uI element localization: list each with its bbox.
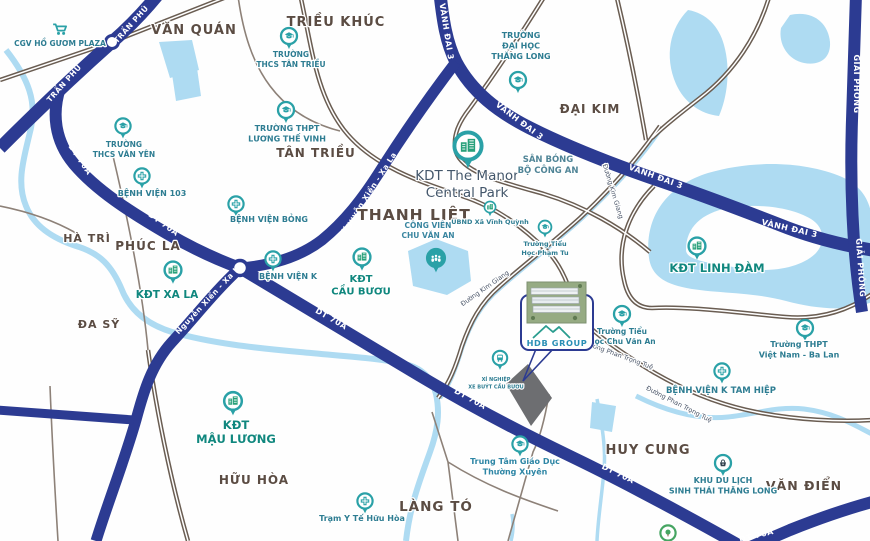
road-label: TRẦN PHÚ <box>111 3 150 45</box>
project-callout[interactable]: HDB GROUP <box>521 282 593 381</box>
place-truong-tieu-hoc-chu-van-an: Trường TiểuHọc Chu Văn An <box>588 306 655 346</box>
kdt-xa-la-building-pin-icon[interactable] <box>165 262 182 284</box>
project-aerial-photo <box>527 282 586 323</box>
kdt-linh-dam-label: KĐT LINH ĐÀM <box>669 260 764 275</box>
place-truong-thcs-van-yen: TRƯỜNGTHCS VĂN YÊN <box>93 118 155 159</box>
kdt-cau-buou-label: KĐT <box>350 274 373 285</box>
hdb-group-label: HDB GROUP <box>527 338 588 348</box>
truong-thpt-viet-nam-ba-lan-school-pin-icon[interactable] <box>797 320 813 341</box>
place-benh-vien-bong: BỆNH VIỆN BỎNG <box>228 196 308 224</box>
place-truong-thpt-viet-nam-ba-lan: Trường THPTViệt Nam - Ba Lan <box>759 320 840 360</box>
truong-tieu-hoc-chu-van-an-label: Học Chu Văn An <box>588 337 655 346</box>
truong-tieu-hoc-pham-tu-label: Học Phạm Tu <box>521 249 569 257</box>
truong-dai-hoc-thang-long-school-pin-icon[interactable] <box>510 72 526 93</box>
trung-tam-giao-duc-thuong-xuyen-label: Trung Tâm Giáo Dục <box>470 457 560 466</box>
road-stub-southwest <box>0 410 134 420</box>
benh-vien-bong-label: BỆNH VIỆN BỎNG <box>230 212 308 224</box>
khu-du-lich-sinh-thai-thang-long-label: SINH THÁI THĂNG LONG <box>669 485 777 496</box>
kdt-mau-luong-building-pin-icon[interactable] <box>224 392 242 415</box>
road-label: VÀNH ĐAI 3 <box>494 99 546 142</box>
place-kdt-cau-buou: KĐTCẦU BƯƠU <box>331 249 391 298</box>
road-label: GIẢI PHÓNG <box>852 54 863 113</box>
area-label-đại-kim: ĐẠI KIM <box>560 102 621 116</box>
map-svg: Đường Kim GiangĐường Kim GiangĐường Phan… <box>0 0 870 541</box>
place-park-tree <box>660 525 675 541</box>
road-label: VÀNH ĐAI 3 <box>761 216 819 240</box>
truong-tieu-hoc-chu-van-an-label: Trường Tiểu <box>597 327 647 336</box>
khu-du-lich-sinh-thai-thang-long-tourism-pin-icon[interactable] <box>715 455 731 476</box>
khu-du-lich-sinh-thai-thang-long-label: KHU DU LỊCH <box>694 476 753 485</box>
tram-y-te-huu-hoa-hospital-pin-icon[interactable] <box>357 493 372 513</box>
kdt-mau-luong-label: KĐT <box>223 418 250 432</box>
ubnd-xa-vinh-quynh-building-pin-icon[interactable] <box>484 201 495 216</box>
kdt-mau-luong-label: MẬU LƯƠNG <box>196 431 276 446</box>
truong-thcs-tan-trieu-label: TRƯỜNG <box>273 50 309 59</box>
place-truong-thcs-tan-trieu: TRƯỜNGTHCS TÂN TRIỀU <box>256 28 325 69</box>
truong-thcs-van-yen-label: TRƯỜNG <box>106 140 142 149</box>
area-label-triều-khúc: TRIỀU KHÚC <box>287 12 386 30</box>
benh-vien-k-tam-hiep-hospital-pin-icon[interactable] <box>714 363 729 383</box>
place-kdt-mau-luong: KĐTMẬU LƯƠNG <box>196 392 276 446</box>
road-label: TRẦN PHÚ <box>44 62 83 104</box>
kdt-the-manor-central-park-building-pin-icon[interactable] <box>454 132 481 168</box>
san-bong-bo-cong-an-label: SÂN BÓNG <box>523 153 574 165</box>
area-label-hà-trì: HÀ TRÌ <box>63 232 111 245</box>
benh-vien-103-label: BỆNH VIỆN 103 <box>118 188 187 198</box>
ubnd-xa-vinh-quynh-label: UBND Xã Vĩnh Quỳnh <box>451 217 529 226</box>
truong-thcs-tan-trieu-school-pin-icon[interactable] <box>281 28 297 49</box>
kdt-the-manor-central-park-label: KDT The Manor <box>415 168 519 184</box>
truong-tieu-hoc-pham-tu-label: Trường Tiểu <box>523 239 567 248</box>
map-canvas: Đường Kim GiangĐường Kim GiangĐường Phan… <box>0 0 870 541</box>
truong-tieu-hoc-pham-tu-school-pin-icon[interactable] <box>539 221 552 238</box>
truong-thpt-luong-the-vinh-label: LƯƠNG THẾ VINH <box>248 132 326 144</box>
cong-vien-chu-van-an-label: CÔNG VIÊN <box>405 221 452 230</box>
place-kdt-xa-la: KĐT XA LA <box>136 262 199 301</box>
cgv-ho-guom-plaza-label: CGV HỒ GƯƠM PLAZA <box>14 38 106 48</box>
kdt-the-manor-central-park-label: Central Park <box>426 185 509 201</box>
area-label-phúc-la: PHÚC LA <box>115 238 181 253</box>
truong-dai-hoc-thang-long-label: TRƯỜNG <box>502 29 541 40</box>
place-san-bong-bo-cong-an: SÂN BÓNGBỘ CÔNG AN <box>518 153 579 176</box>
place-cgv-ho-guom-plaza: CGV HỒ GƯƠM PLAZA <box>14 24 106 48</box>
area-label-hữu-hòa: HỮU HÒA <box>219 472 289 487</box>
cgv-ho-guom-plaza-cart-icon[interactable] <box>53 24 66 35</box>
kdt-cau-buou-label: CẦU BƯƠU <box>331 284 391 298</box>
truong-thpt-luong-the-vinh-school-pin-icon[interactable] <box>278 102 294 123</box>
benh-vien-103-hospital-pin-icon[interactable] <box>134 168 149 188</box>
truong-dai-hoc-thang-long-label: ĐẠI HỌC <box>502 42 540 51</box>
area-label-văn-điển: VĂN ĐIỂN <box>766 476 842 493</box>
place-xi-nghiep-xe-buyt-cau-buou: XÍ NGHIỆPXE BUÝT CẦU BƯƠU <box>468 351 523 391</box>
san-bong-bo-cong-an-label: BỘ CÔNG AN <box>518 164 579 176</box>
lake-north-2 <box>780 14 830 64</box>
truong-thcs-tan-trieu-label: THCS TÂN TRIỀU <box>256 59 325 69</box>
truong-thpt-luong-the-vinh-label: TRƯỜNG THPT <box>255 122 320 133</box>
trung-tam-giao-duc-thuong-xuyen-school-pin-icon[interactable] <box>512 436 527 456</box>
truong-thcs-van-yen-school-pin-icon[interactable] <box>115 118 130 138</box>
truong-dai-hoc-thang-long-label: THĂNG LONG <box>491 50 550 61</box>
truong-tieu-hoc-chu-van-an-school-pin-icon[interactable] <box>614 306 630 327</box>
truong-thcs-van-yen-label: THCS VĂN YÊN <box>93 150 155 159</box>
place-khu-du-lich-sinh-thai-thang-long: KHU DU LỊCHSINH THÁI THĂNG LONG <box>669 455 777 496</box>
trung-tam-giao-duc-thuong-xuyen-label: Thường Xuyên <box>483 467 548 477</box>
park-tree-tree-pin-icon[interactable] <box>660 525 675 541</box>
benh-vien-k-label: BỆNH VIỆN K <box>259 271 318 281</box>
truong-thpt-viet-nam-ba-lan-label: Việt Nam - Ba Lan <box>759 351 840 360</box>
benh-vien-bong-hospital-pin-icon[interactable] <box>228 196 243 216</box>
area-label-tân-triều: TÂN TRIỀU <box>276 143 356 160</box>
area-label-làng-tó: LÀNG TÓ <box>399 497 473 515</box>
place-benh-vien-k-tam-hiep: BỆNH VIỆN K TAM HIỆP <box>666 363 776 396</box>
benh-vien-k-tam-hiep-label: BỆNH VIỆN K TAM HIỆP <box>666 385 776 396</box>
kdt-xa-la-label: KĐT XA LA <box>136 289 199 301</box>
pond-small <box>590 402 616 432</box>
cong-vien-chu-van-an-label: CHU VĂN AN <box>401 231 454 240</box>
kdt-cau-buou-building-pin-icon[interactable] <box>354 249 371 271</box>
area-label-huy-cung: HUY CUNG <box>605 443 690 458</box>
tram-y-te-huu-hoa-label: Trạm Y Tế Hữu Hòa <box>319 513 405 523</box>
area-label-văn-quán: VĂN QUÁN <box>151 22 237 38</box>
area-label-đa-sỹ: ĐA SỸ <box>78 318 120 331</box>
xi-nghiep-xe-buyt-cau-buou-bus-pin-icon[interactable] <box>493 351 507 370</box>
truong-thpt-viet-nam-ba-lan-label: Trường THPT <box>770 339 828 349</box>
place-tram-y-te-huu-hoa: Trạm Y Tế Hữu Hòa <box>319 493 405 523</box>
kdt-linh-dam-building-pin-icon[interactable] <box>689 238 706 260</box>
place-benh-vien-103: BỆNH VIỆN 103 <box>118 168 187 198</box>
xi-nghiep-xe-buyt-cau-buou-label: XÍ NGHIỆP <box>482 375 511 383</box>
